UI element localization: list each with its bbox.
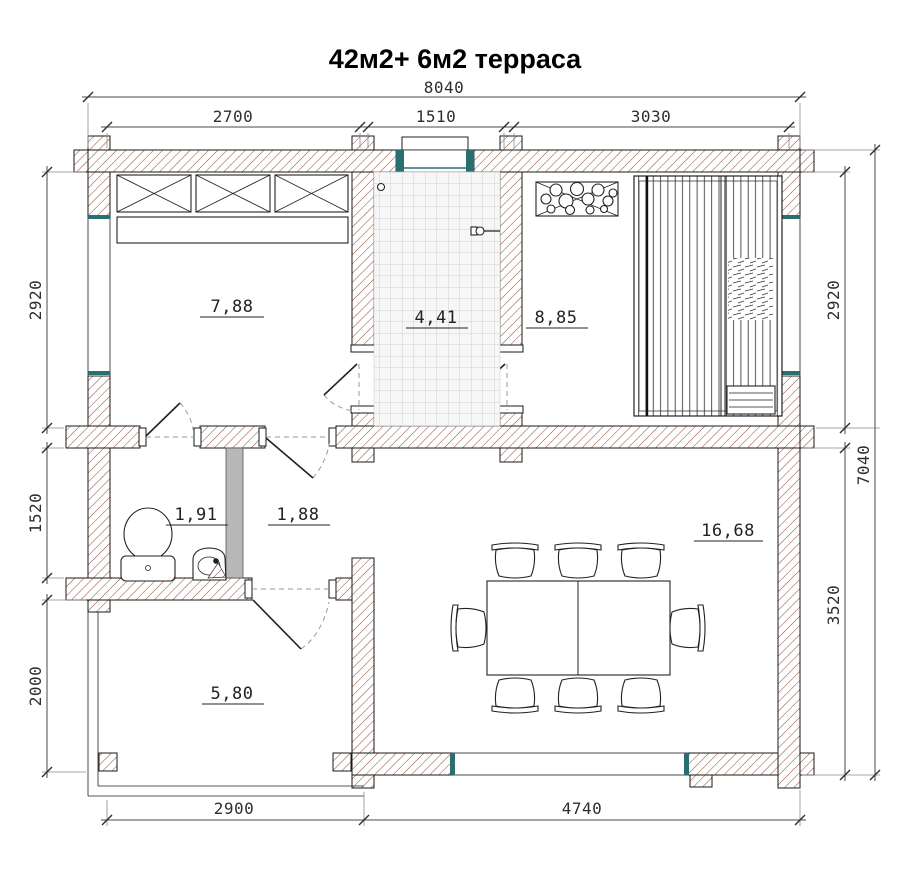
terrace-post xyxy=(333,753,351,771)
chair xyxy=(555,543,601,578)
room-area-wc: 1,91 xyxy=(175,505,218,525)
dim-left-3: 2000 xyxy=(26,666,45,707)
door-bedroom xyxy=(324,345,375,413)
chair xyxy=(618,543,664,578)
door-hall xyxy=(259,428,336,478)
wall-middle xyxy=(66,426,140,448)
tiled-floor xyxy=(374,172,500,426)
terrace-post xyxy=(99,753,117,771)
log-stub xyxy=(800,426,814,448)
dim-right-total: 7040 xyxy=(854,445,873,486)
dim-right-2: 3520 xyxy=(824,585,843,626)
floor-plan-drawing: 8040 2700 1510 3030 2920 1520 2000 2920 … xyxy=(0,0,907,885)
chair xyxy=(492,543,538,578)
wall-wc-bottom xyxy=(336,578,352,600)
toilet-symbol xyxy=(121,508,175,581)
plan-title: 42м2+ 6м2 терраса xyxy=(329,44,582,74)
wall-shower-sauna xyxy=(500,413,522,426)
dim-bottom-1: 2900 xyxy=(214,799,255,818)
wall-left xyxy=(88,376,110,426)
chair xyxy=(555,678,601,713)
log-stub xyxy=(690,775,712,787)
room-area-hall: 1,88 xyxy=(277,505,320,525)
bench-backrest xyxy=(728,258,773,320)
room-area-terrace: 5,80 xyxy=(211,684,254,704)
door-wc xyxy=(139,403,201,446)
sauna-room xyxy=(536,176,782,416)
sauna-step xyxy=(727,386,775,414)
window-left xyxy=(88,215,110,376)
dim-left-2: 1520 xyxy=(26,493,45,534)
wall-shower-sauna xyxy=(500,172,522,345)
log-stub xyxy=(352,448,374,462)
log-stub xyxy=(352,136,374,150)
wall-left xyxy=(88,600,110,612)
wall-left xyxy=(88,172,110,217)
room-area-sauna: 8,85 xyxy=(535,308,578,328)
log-stub xyxy=(800,150,814,172)
entry-door xyxy=(396,137,474,172)
window-bottom xyxy=(450,753,689,775)
chair xyxy=(670,605,705,651)
dim-bottom-2: 4740 xyxy=(562,799,603,818)
wall-left xyxy=(88,448,110,578)
entry-step xyxy=(402,137,468,150)
dim-top-1: 2700 xyxy=(213,107,254,126)
wall-middle xyxy=(336,426,800,448)
dim-left-1: 2920 xyxy=(26,280,45,321)
log-stub xyxy=(500,448,522,462)
room-area-shower: 4,41 xyxy=(415,308,458,328)
chair xyxy=(492,678,538,713)
log-stub xyxy=(800,753,814,775)
log-stub xyxy=(74,150,88,172)
bedroom-furniture xyxy=(117,175,348,243)
log-stub xyxy=(500,136,522,150)
chair xyxy=(451,605,486,651)
dim-top-total: 8040 xyxy=(424,78,465,97)
drain-symbol xyxy=(378,184,385,191)
sauna-benches xyxy=(634,176,782,416)
partition-wc-hall xyxy=(226,448,243,578)
room-area-living: 16,68 xyxy=(701,521,755,541)
door-terrace xyxy=(245,580,336,649)
dim-right-1: 2920 xyxy=(824,280,843,321)
wall-bottom xyxy=(352,753,452,775)
wall-middle xyxy=(200,426,265,448)
wall-bottom xyxy=(688,753,778,775)
dim-top-2: 1510 xyxy=(416,107,457,126)
chair xyxy=(618,678,664,713)
shower-room xyxy=(374,172,500,426)
bed-symbol xyxy=(117,217,348,243)
wall-bedroom-shower xyxy=(352,413,374,426)
room-area-bedroom: 7,88 xyxy=(211,297,254,317)
sauna-stove-symbol xyxy=(536,182,618,216)
floor-plan-page: 8040 2700 1510 3030 2920 1520 2000 2920 … xyxy=(0,0,907,885)
dim-top-3: 3030 xyxy=(631,107,672,126)
dining-set xyxy=(451,543,705,713)
wall-bedroom-shower xyxy=(352,172,374,345)
sink-symbol xyxy=(193,548,226,580)
